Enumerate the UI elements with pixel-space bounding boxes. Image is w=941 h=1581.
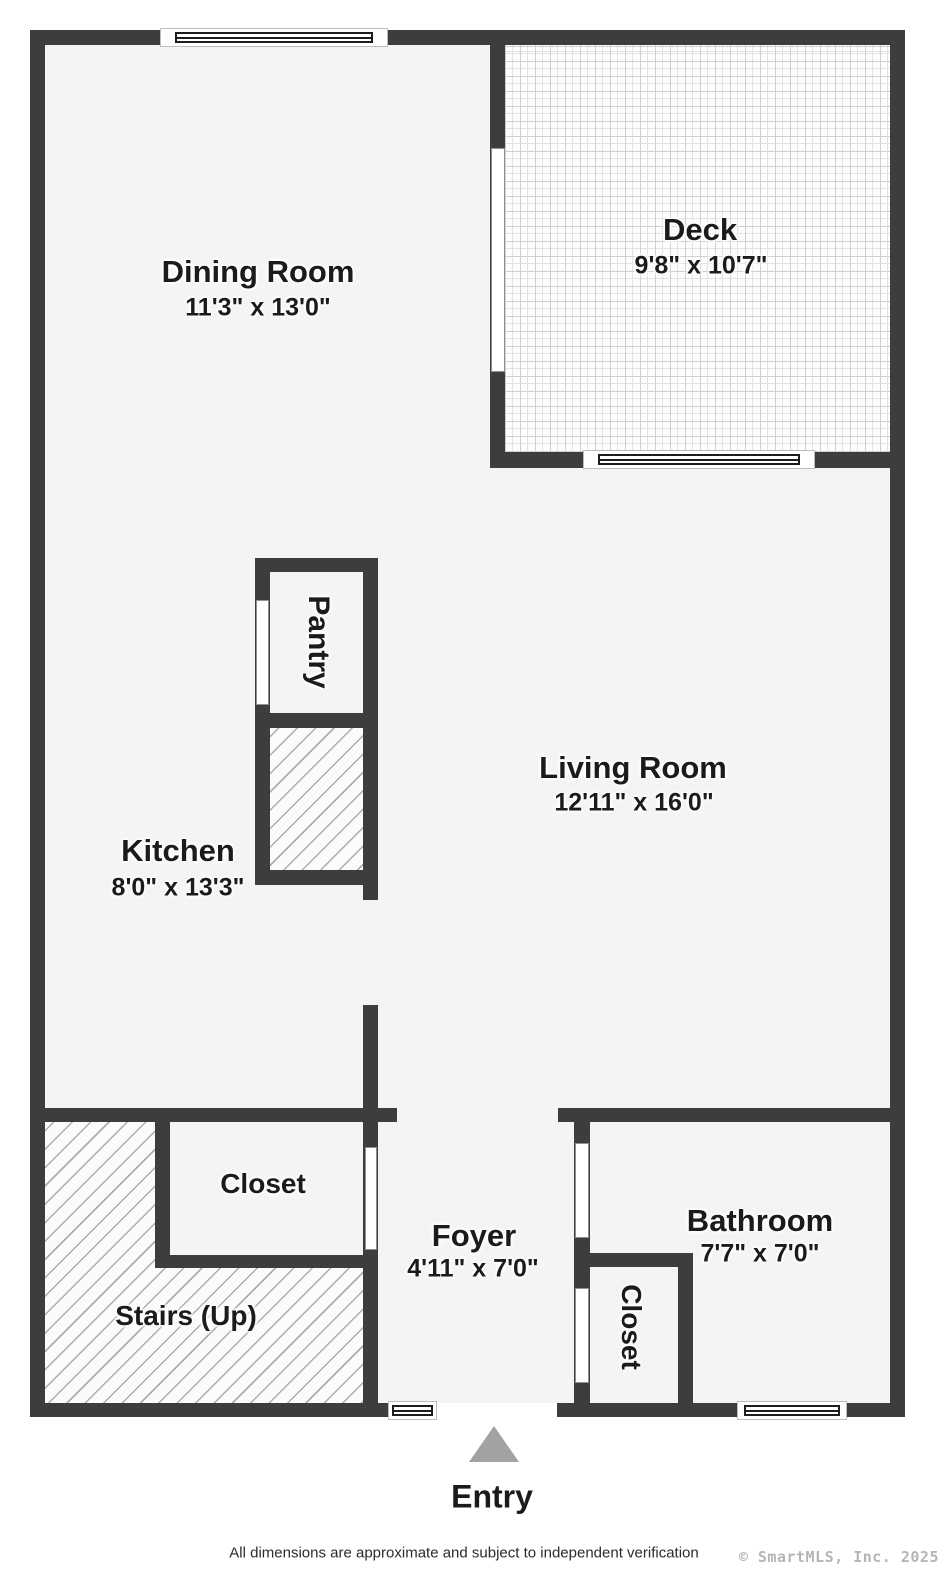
bath-closet-door: [575, 1288, 589, 1383]
living-room-dims: 12'11" x 16'0": [554, 789, 713, 818]
dining-window: [160, 28, 388, 47]
foyer-label: Foyer: [432, 1218, 516, 1254]
pantry-door: [256, 600, 269, 705]
floorplan: Dining Room 11'3" x 13'0" Deck 9'8" x 10…: [0, 0, 941, 1581]
wall-hall-closet-bottom: [155, 1255, 378, 1268]
bathroom-dims: 7'7" x 7'0": [700, 1240, 819, 1269]
wall-pantry-mid: [255, 713, 378, 728]
kitchen-label: Kitchen: [121, 833, 235, 869]
deck-floor: [505, 45, 890, 452]
entry-arrow-icon: [469, 1426, 519, 1462]
window-glass: [392, 1405, 433, 1416]
wall-stairwell-bottom: [255, 870, 378, 885]
hall-closet-door: [365, 1147, 377, 1250]
deck-window: [583, 450, 815, 469]
window-glass: [175, 32, 374, 43]
kitchen-stairwell-hatch: [270, 728, 363, 870]
bath-closet-label: Closet: [615, 1284, 647, 1370]
wall-pantry-top: [255, 558, 378, 572]
wall-bathroom-top: [558, 1108, 905, 1122]
entry-door-opening: [437, 1403, 557, 1417]
bathroom-window: [737, 1401, 847, 1420]
dining-room-label: Dining Room: [162, 254, 355, 290]
pantry-label: Pantry: [301, 595, 335, 688]
foyer-dims: 4'11" x 7'0": [407, 1255, 539, 1284]
wall-bath-closet-right: [678, 1253, 693, 1417]
wall-outer-right: [890, 30, 905, 1417]
copyright-text: © SmartMLS, Inc. 2025: [739, 1548, 939, 1566]
deck-label: Deck: [663, 212, 737, 248]
deck-sliding-door: [491, 148, 505, 372]
bathroom-door: [575, 1143, 589, 1238]
entry-label: Entry: [451, 1479, 533, 1516]
wall-bath-closet-top: [574, 1253, 693, 1267]
bathroom-label: Bathroom: [687, 1203, 833, 1239]
wall-outer-left: [30, 30, 45, 1417]
kitchen-dims: 8'0" x 13'3": [112, 874, 245, 903]
wall-stairs-top: [30, 1108, 397, 1122]
living-room-label: Living Room: [539, 750, 727, 786]
entry-sidelight-window: [388, 1401, 437, 1420]
stairs-label: Stairs (Up): [115, 1300, 257, 1332]
deck-dims: 9'8" x 10'7": [635, 252, 768, 281]
window-glass: [744, 1405, 839, 1416]
hall-closet-label: Closet: [220, 1168, 306, 1200]
wall-pantry-right: [363, 558, 378, 900]
wall-hall-closet-left: [155, 1122, 170, 1268]
disclaimer-text: All dimensions are approximate and subje…: [229, 1545, 698, 1562]
dining-room-dims: 11'3" x 13'0": [185, 294, 330, 323]
window-glass: [598, 454, 800, 465]
